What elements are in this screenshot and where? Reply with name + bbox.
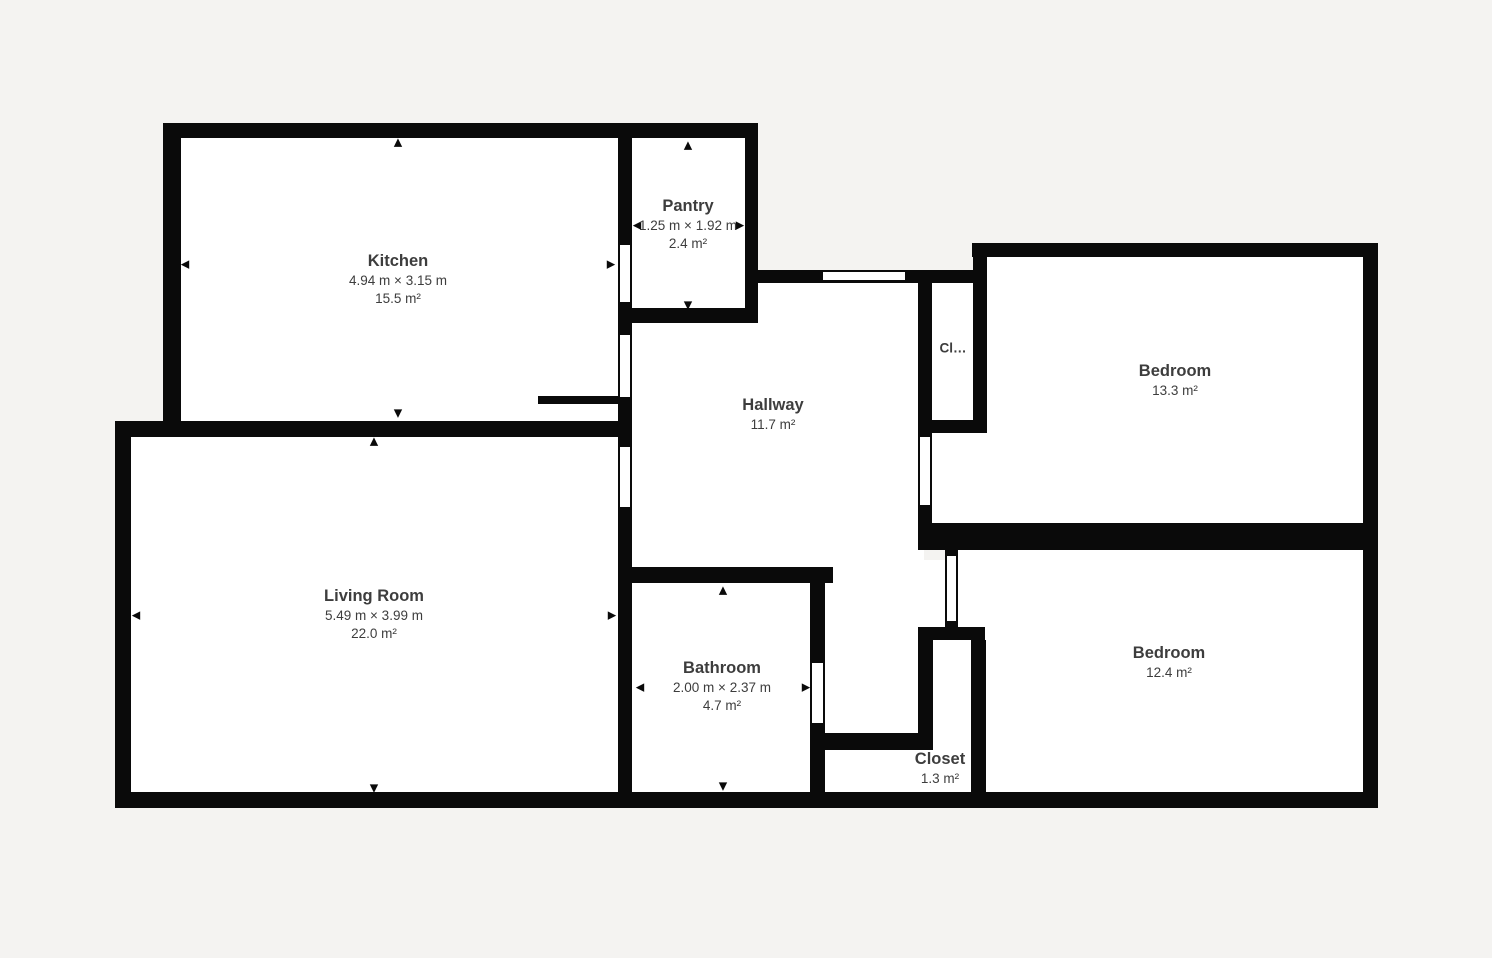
room-name: Pantry [639,196,737,217]
dim-arrow-right-icon: ▶ [607,259,615,270]
wall [115,421,131,808]
wall [972,243,1378,257]
room-area: 1.3 m² [915,770,965,787]
room-bedroom-top-alcove[interactable] [924,428,986,528]
wall [115,792,1378,808]
room-name: Bathroom [673,658,771,679]
dim-arrow-right-icon: ▶ [736,220,744,231]
wall [918,523,1365,550]
door-opening-entry [823,272,905,280]
door-opening-bedroom-top [920,437,930,505]
room-name: Living Room [324,586,424,607]
wall [618,567,833,583]
dim-arrow-right-icon: ▶ [802,682,810,693]
dim-arrow-left-icon: ◀ [636,682,644,693]
room-name: Cl… [940,341,967,355]
wall [971,640,986,793]
wall [1363,243,1378,808]
room-area: 11.7 m² [742,416,803,433]
dim-arrow-up-icon: ▲ [719,585,727,596]
wall [163,123,758,138]
room-label-hallway: Hallway 11.7 m² [742,395,803,433]
room-name: Kitchen [349,251,447,272]
room-area: 2.4 m² [639,235,737,252]
dim-arrow-left-icon: ◀ [132,610,140,621]
room-area: 12.4 m² [1133,664,1205,681]
room-dimensions: 4.94 m × 3.15 m [349,272,447,290]
floor-plan: ▲ ▼ ◀ ▶ ▲ ▼ ◀ ▶ ▲ ▼ ◀ ▶ ▲ ▼ ◀ ▶ Kitchen … [0,0,1492,958]
wall [918,640,933,733]
room-label-bathroom: Bathroom 2.00 m × 2.37 m 4.7 m² [673,658,771,714]
room-name: Bedroom [1139,361,1211,382]
room-label-living: Living Room 5.49 m × 3.99 m 22.0 m² [324,586,424,642]
wall-partition-stub [538,396,620,404]
dim-arrow-right-icon: ▶ [608,610,616,621]
dim-arrow-down-icon: ▼ [370,783,378,794]
wall [825,733,933,750]
door-opening-living-room [620,447,630,507]
door-opening-bathroom [812,663,823,723]
door-opening-pantry [620,245,630,302]
wall [918,420,987,433]
door-opening-kitchen [620,335,630,397]
room-name: Closet [915,749,965,770]
dim-arrow-down-icon: ▼ [394,408,402,419]
room-dimensions: 1.25 m × 1.92 m [639,217,737,235]
room-area: 22.0 m² [324,625,424,642]
room-label-pantry: Pantry 1.25 m × 1.92 m 2.4 m² [639,196,737,252]
room-label-kitchen: Kitchen 4.94 m × 3.15 m 15.5 m² [349,251,447,307]
room-label-closet: Closet 1.3 m² [915,749,965,787]
wall [918,627,985,640]
dim-arrow-down-icon: ▼ [719,781,727,792]
room-label-closet-small: Cl… [940,341,967,355]
room-label-bedroom-top: Bedroom 13.3 m² [1139,361,1211,399]
room-name: Bedroom [1133,643,1205,664]
room-area: 13.3 m² [1139,382,1211,399]
room-area: 4.7 m² [673,697,771,714]
wall [973,257,987,433]
dim-arrow-down-icon: ▼ [684,300,692,311]
room-label-bedroom-bottom: Bedroom 12.4 m² [1133,643,1205,681]
wall [745,123,758,323]
wall [918,283,932,433]
dim-arrow-up-icon: ▲ [370,436,378,447]
room-name: Hallway [742,395,803,416]
room-dimensions: 2.00 m × 2.37 m [673,679,771,697]
dim-arrow-up-icon: ▲ [684,140,692,151]
dim-arrow-left-icon: ◀ [181,259,189,270]
wall [163,123,181,437]
room-area: 15.5 m² [349,290,447,307]
door-opening-bedroom-bottom [947,556,956,621]
room-dimensions: 5.49 m × 3.99 m [324,607,424,625]
dim-arrow-up-icon: ▲ [394,137,402,148]
